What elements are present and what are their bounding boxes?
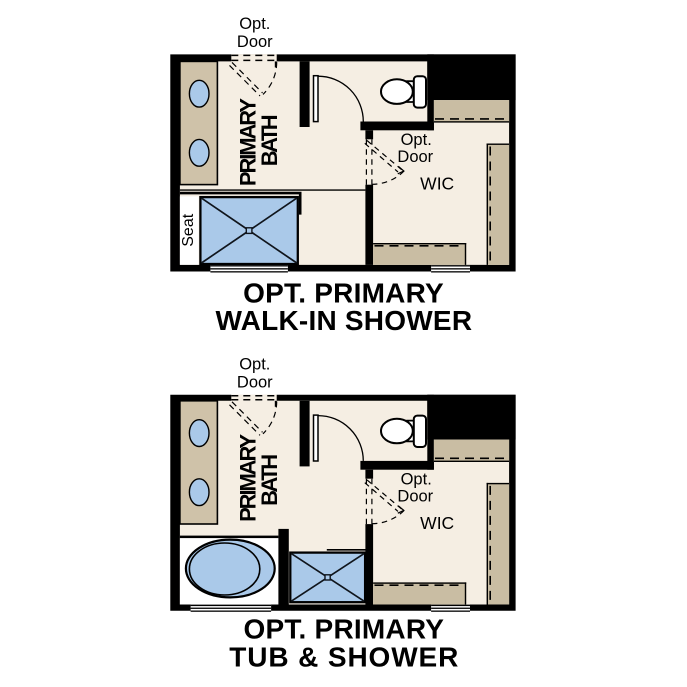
svg-text:WALK-IN SHOWER: WALK-IN SHOWER <box>216 305 473 336</box>
svg-text:WIC: WIC <box>420 174 454 194</box>
svg-text:Door: Door <box>397 148 433 166</box>
svg-text:OPT. PRIMARY: OPT. PRIMARY <box>243 614 444 645</box>
svg-text:Opt.: Opt. <box>239 15 270 33</box>
svg-text:BATH: BATH <box>257 454 282 506</box>
svg-text:WIC: WIC <box>420 513 454 533</box>
svg-text:Door: Door <box>397 488 433 506</box>
svg-text:TUB & SHOWER: TUB & SHOWER <box>229 641 458 672</box>
svg-text:Opt.: Opt. <box>239 356 270 374</box>
svg-text:Seat: Seat <box>180 213 197 246</box>
svg-text:Opt.: Opt. <box>401 470 432 488</box>
svg-text:BATH: BATH <box>257 114 282 166</box>
svg-text:Door: Door <box>237 33 273 51</box>
svg-text:Door: Door <box>237 373 273 391</box>
svg-text:Opt.: Opt. <box>401 131 432 149</box>
